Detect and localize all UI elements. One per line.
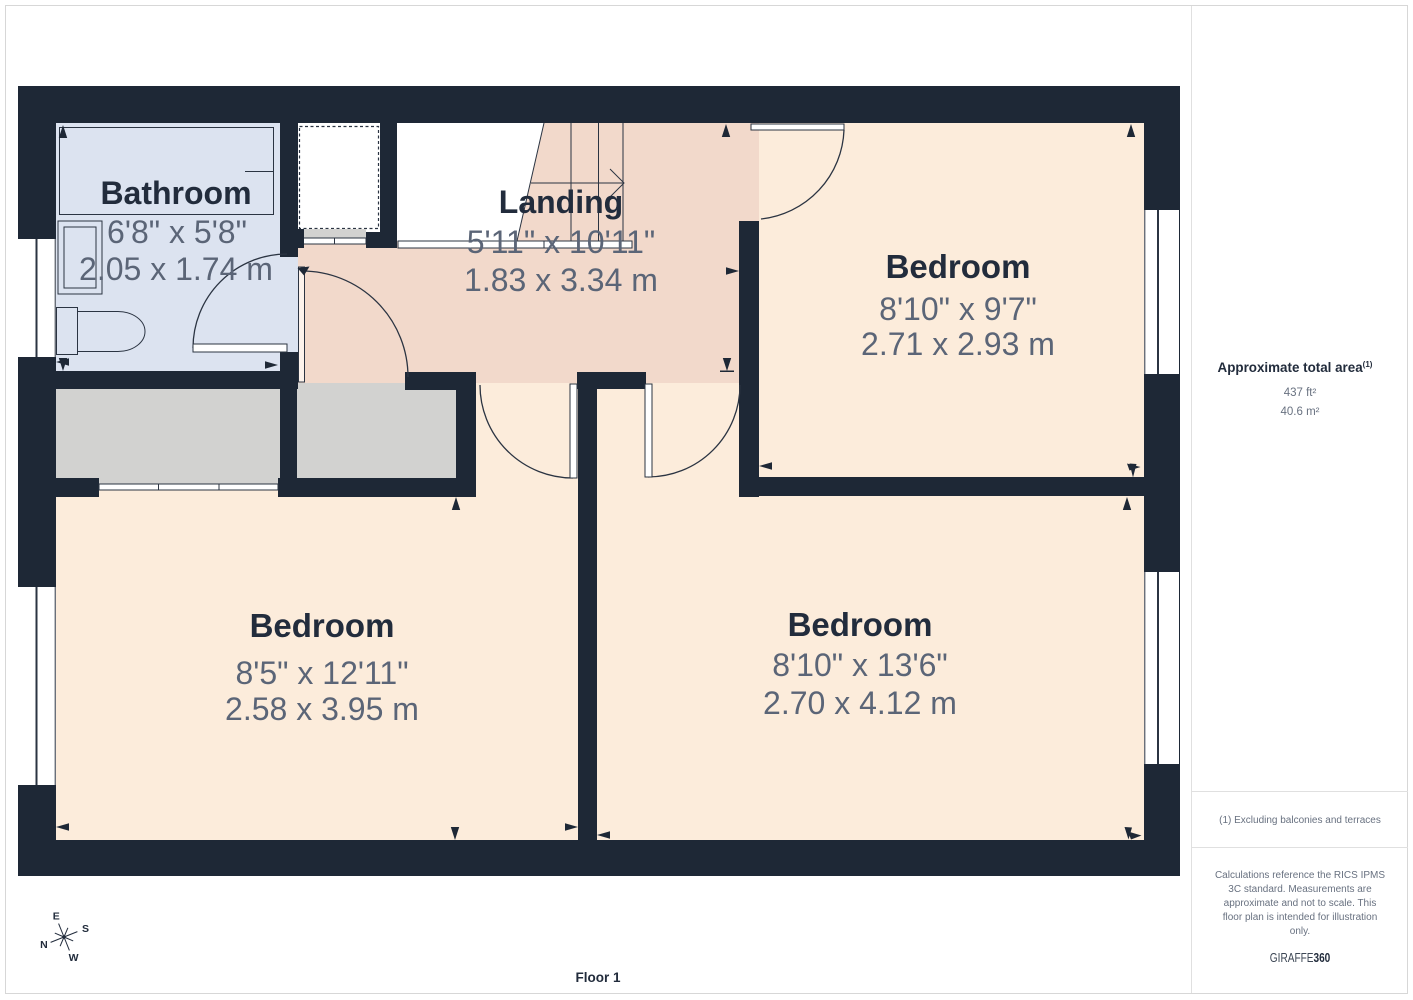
svg-text:2.71 x 2.93 m: 2.71 x 2.93 m (861, 326, 1055, 362)
svg-text:E: E (53, 910, 60, 922)
svg-text:Bedroom: Bedroom (886, 248, 1031, 285)
svg-text:approximate and not to scale.: approximate and not to scale. This (1224, 898, 1377, 909)
svg-text:Calculations reference the RIC: Calculations reference the RICS IPMS (1215, 870, 1385, 881)
svg-text:Bedroom: Bedroom (788, 606, 933, 643)
svg-text:40.6 m²: 40.6 m² (1281, 406, 1320, 418)
svg-text:S: S (82, 923, 89, 935)
svg-text:Approximate total area(1): Approximate total area(1) (1218, 360, 1373, 375)
svg-text:Bedroom: Bedroom (250, 607, 395, 644)
svg-text:2.58 x 3.95 m: 2.58 x 3.95 m (225, 691, 419, 727)
svg-text:2.05 x 1.74 m: 2.05 x 1.74 m (79, 251, 273, 287)
svg-text:1.83 x 3.34 m: 1.83 x 3.34 m (464, 262, 658, 298)
svg-text:(1) Excluding balconies and te: (1) Excluding balconies and terraces (1219, 815, 1381, 826)
svg-text:GIRAFFE360: GIRAFFE360 (1270, 950, 1331, 965)
svg-text:only.: only. (1290, 926, 1310, 937)
svg-text:5'11" x 10'11": 5'11" x 10'11" (467, 224, 656, 260)
svg-text:W: W (69, 952, 79, 964)
svg-text:6'8" x 5'8": 6'8" x 5'8" (107, 214, 247, 250)
svg-text:3C standard. Measurements are: 3C standard. Measurements are (1228, 884, 1372, 895)
svg-text:Floor 1: Floor 1 (575, 970, 620, 985)
svg-text:Landing: Landing (499, 184, 623, 220)
svg-text:437 ft²: 437 ft² (1284, 387, 1317, 399)
svg-text:N: N (40, 939, 48, 951)
svg-text:2.70 x 4.12 m: 2.70 x 4.12 m (763, 685, 957, 721)
svg-text:8'10" x 13'6": 8'10" x 13'6" (772, 647, 948, 683)
svg-text:floor plan is intended for ill: floor plan is intended for illustration (1223, 912, 1378, 923)
svg-text:8'10" x 9'7": 8'10" x 9'7" (879, 291, 1037, 327)
svg-text:Bathroom: Bathroom (100, 175, 251, 211)
svg-text:8'5" x 12'11": 8'5" x 12'11" (235, 655, 408, 691)
